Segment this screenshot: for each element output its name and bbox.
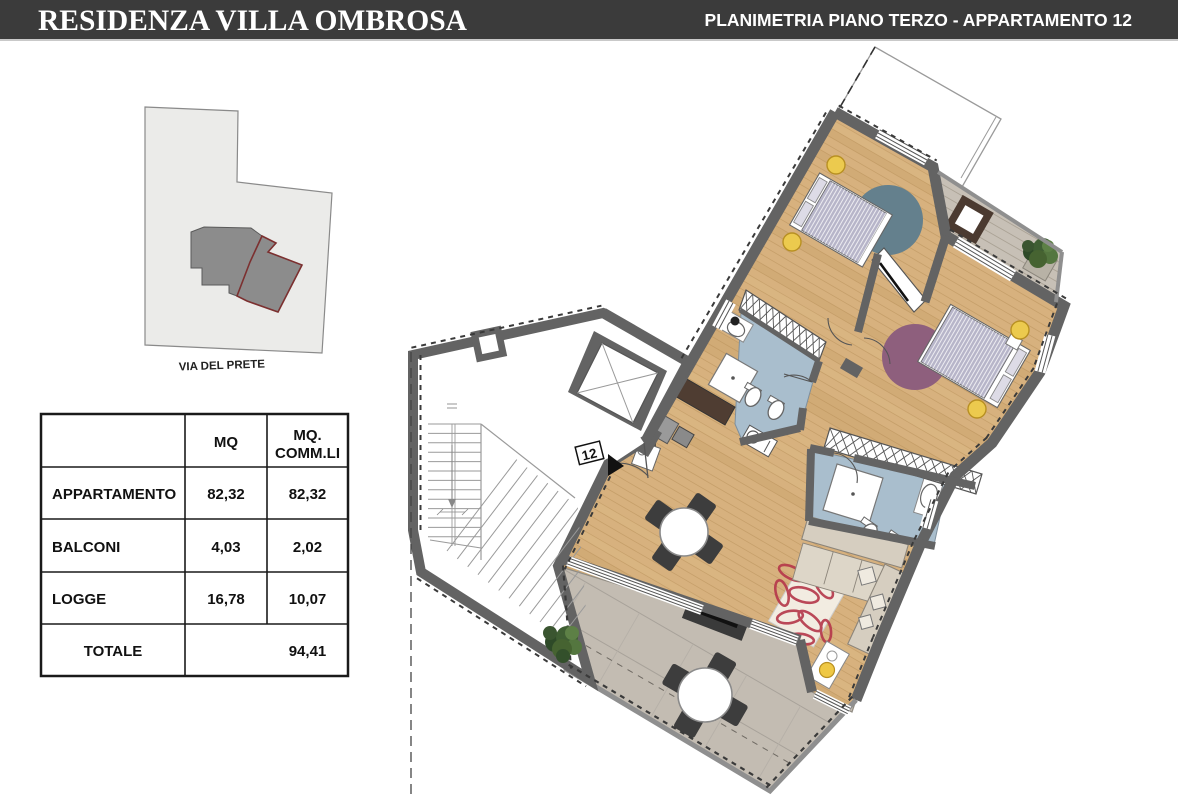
svg-text:BALCONI: BALCONI — [52, 539, 120, 556]
svg-text:MQ: MQ — [214, 434, 238, 451]
svg-text:LOGGE: LOGGE — [52, 591, 106, 608]
svg-text:COMM.LI: COMM.LI — [275, 445, 340, 462]
svg-text:10,07: 10,07 — [289, 591, 327, 608]
svg-text:82,32: 82,32 — [207, 486, 245, 503]
svg-text:4,03: 4,03 — [211, 539, 240, 556]
svg-text:2,02: 2,02 — [293, 539, 322, 556]
svg-text:APPARTAMENTO: APPARTAMENTO — [52, 486, 177, 503]
svg-text:RESIDENZA VILLA OMBROSA: RESIDENZA VILLA OMBROSA — [38, 5, 468, 37]
svg-text:VIA DEL PRETE: VIA DEL PRETE — [179, 358, 266, 373]
svg-text:PLANIMETRIA PIANO TERZO - APPA: PLANIMETRIA PIANO TERZO - APPARTAMENTO 1… — [705, 10, 1133, 30]
svg-text:16,78: 16,78 — [207, 591, 245, 608]
svg-text:82,32: 82,32 — [289, 486, 327, 503]
svg-text:94,41: 94,41 — [289, 643, 327, 660]
svg-text:TOTALE: TOTALE — [84, 643, 143, 660]
svg-text:MQ.: MQ. — [293, 427, 321, 444]
